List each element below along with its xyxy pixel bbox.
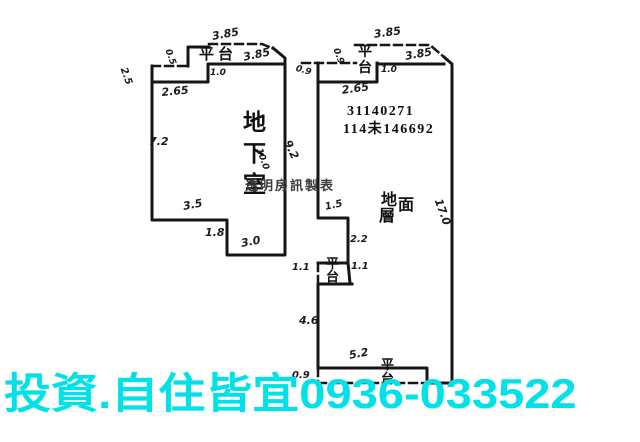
watermark-text: 投資.自住皆宜0936-033522 <box>4 371 577 417</box>
right-room-label-char: 面 <box>398 191 414 215</box>
dim-right-step: 1.0 <box>381 65 397 75</box>
dim-left-step: 1.0 <box>210 68 226 78</box>
right-platform-top-label: 平 台 <box>358 45 372 77</box>
dim-left-west-wall: 7.2 <box>149 135 169 148</box>
right-platform-mid-label: 平 台 <box>326 257 339 283</box>
floorplan-canvas: 3.85平台3.850.52.51.02.657.2地 下 室10.03.51.… <box>0 0 640 442</box>
dim-left-shoulder: 2.65 <box>161 84 189 99</box>
dim-right-west-lower: 4.6 <box>299 314 319 327</box>
maker-credit: 透明房訊製表 <box>245 175 335 194</box>
dim-left-bottom-step: 1.8 <box>205 226 225 239</box>
right-room-label-char: 層 <box>379 202 395 226</box>
dim-right-notch-left: 1.1 <box>292 262 310 273</box>
dim-right-notch-right: 1.1 <box>351 261 369 272</box>
registration-number-line2: 114未146692 <box>343 118 434 138</box>
dim-right-mid: 2.2 <box>350 234 368 245</box>
right-building-dashed <box>302 45 444 383</box>
left-platform-label: 平台 <box>199 43 237 64</box>
